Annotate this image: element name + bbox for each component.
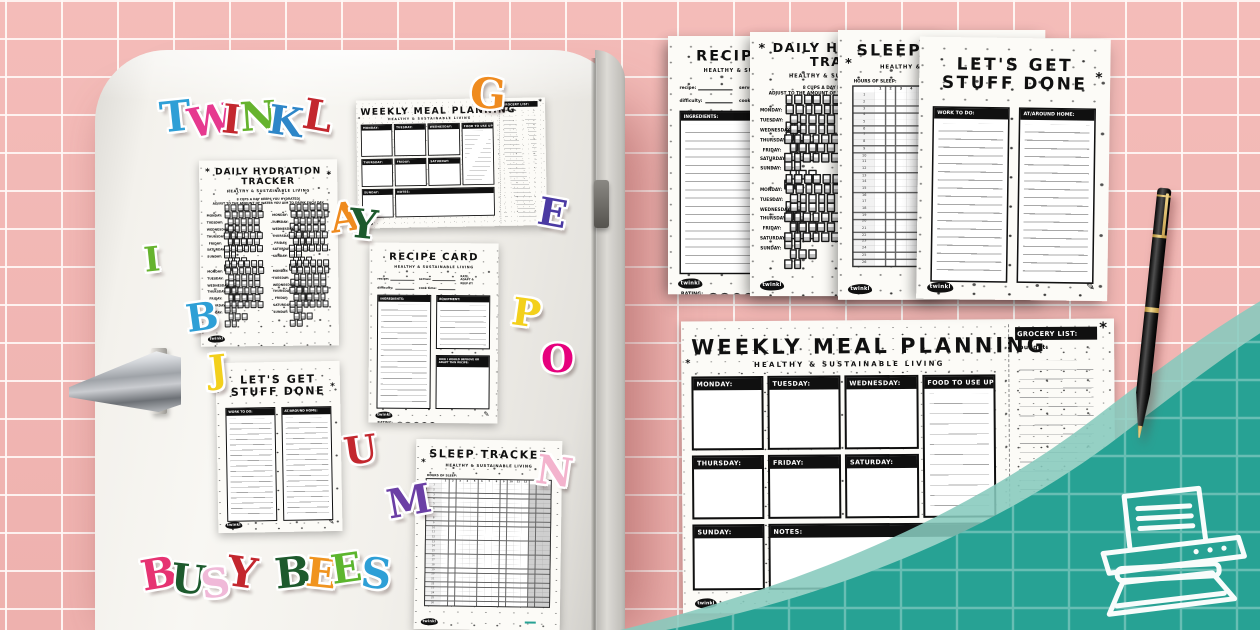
sleep-grid-cell: [471, 526, 478, 530]
sleep-grid-cell: [500, 532, 507, 536]
sleep-grid-cell: [449, 498, 456, 502]
sleep-grid-cell: [515, 499, 522, 503]
sleep-grid-cell: [875, 180, 885, 186]
field-line: [395, 284, 414, 289]
sleep-grid-cell: [522, 490, 529, 494]
sleep-grid-cell: [521, 536, 528, 540]
sleep-grid-cell: [906, 253, 916, 259]
sleep-grid-cell: [448, 554, 455, 558]
sleep-grid-cell: [542, 584, 549, 588]
hydration-day-row: SUNDAY:: [273, 308, 332, 315]
sleep-grid-cell: [442, 507, 449, 511]
sleep-grid-cell: [471, 512, 478, 516]
equipment-label: EQUIPMENT:: [437, 296, 489, 303]
sleep-grid-cell: [906, 100, 916, 106]
sleep-grid-cell: [896, 226, 906, 232]
sleep-grid-cell: [506, 602, 513, 606]
field-label: recipe:: [679, 84, 696, 90]
sleep-grid-cell: [463, 522, 470, 526]
sleep-grid-cell: 11: [515, 480, 522, 484]
meal-box-notes: NOTES:: [395, 187, 495, 218]
sleep-grid-cell: [886, 186, 896, 192]
sleep-grid-cell: [507, 508, 514, 512]
sleep-grid-cell: [513, 583, 520, 587]
sleep-grid-cell: [528, 565, 535, 569]
sleep-grid-cell: [442, 493, 449, 497]
sleep-grid-cell: [455, 596, 462, 600]
magnet-letter-k: K: [265, 100, 305, 144]
sleep-grid-cell: [507, 513, 514, 517]
sleep-grid-cell: [485, 531, 492, 535]
sleep-grid-cell: [521, 583, 528, 587]
sleep-grid-cell: [500, 499, 507, 503]
sleep-grid-cell: [513, 597, 520, 601]
sleep-grid-cell: [514, 527, 521, 531]
sleep-grid-cell: [441, 587, 448, 591]
day-label: MONDAY:: [207, 269, 223, 273]
sleep-grid-cell: [521, 532, 528, 536]
sleep-grid-cell: [544, 495, 551, 499]
rating-circle: [732, 293, 741, 294]
sleep-grid-cell: [514, 569, 521, 573]
day-label: TUESDAY:: [273, 275, 289, 279]
sleep-grid-cell: [886, 146, 896, 152]
sleep-grid-cell: [875, 173, 885, 179]
printer-icon: [1100, 486, 1247, 614]
sleep-grid-cell: [463, 568, 470, 572]
sleep-grid-cell: [492, 578, 499, 582]
sleep-grid-cell: [471, 489, 478, 493]
sleep-grid-cell: [456, 536, 463, 540]
sleep-grid-cell: [463, 578, 470, 582]
magnet-letter-i: I: [142, 242, 161, 277]
todo-column-work: WORK TO DO:: [225, 407, 277, 522]
sleep-grid-cell: [448, 545, 455, 549]
day-label: FRIDAY:: [760, 146, 781, 152]
sleep-grid-cell: 4: [906, 87, 916, 93]
sleep-grid-cell: [470, 550, 477, 554]
sleep-grid-cell: [536, 537, 543, 541]
sleep-grid-cell: 16: [854, 193, 875, 199]
sleep-grid-cell: [536, 532, 543, 536]
sleep-grid-cell: [528, 602, 535, 606]
hydration-week-blocks: MONDAY:TUESDAY:WEDNESDAY:THURSDAY:FRIDAY…: [207, 211, 332, 315]
sleep-grid-cell: [543, 518, 550, 522]
sleep-grid-cell: 9: [854, 146, 875, 152]
sleep-grid-cell: 6: [854, 126, 875, 132]
sleep-grid-cell: [875, 226, 885, 232]
sleep-grid-cell: [886, 93, 896, 99]
sleep-grid-cell: [457, 484, 464, 488]
sleep-grid-cell: [906, 233, 916, 239]
sleep-grid-cell: [500, 522, 507, 526]
sleep-grid-cell: [513, 602, 520, 606]
magnet-letter-g: G: [469, 72, 508, 116]
sleep-grid-cell: [484, 602, 491, 606]
meal-box-tuesday: TUESDAY:: [767, 375, 841, 450]
sleep-grid-cell: 26: [425, 601, 440, 605]
sleep-grid-cell: [529, 499, 536, 503]
sleep-grid-cell: [514, 508, 521, 512]
sleep-grid-cell: [514, 522, 521, 526]
sleep-grid-cell: [543, 532, 550, 536]
sleep-grid-cell: [875, 246, 885, 252]
sleep-grid-cell: [896, 206, 906, 212]
sleep-grid-cell: [500, 489, 507, 493]
sleep-grid-cell: [455, 578, 462, 582]
sleep-grid-cell: [886, 233, 896, 239]
sleep-grid-cell: [906, 240, 916, 246]
sleep-grid-cell: [528, 569, 535, 573]
sleep-grid-cell: 11: [854, 160, 875, 166]
todo-title: LET'S GETSTUFF DONE: [216, 373, 340, 400]
cup-icons: [784, 220, 843, 274]
sleep-grid-cell: [506, 564, 513, 568]
sleep-grid-cell: [906, 146, 916, 152]
sleep-grid-cell: [521, 588, 528, 592]
recipe-title: RECIPE CARD: [369, 252, 498, 264]
sleep-grid-cell: [529, 508, 536, 512]
sleep-grid: 1234567891011121234567891011121314151617…: [424, 478, 552, 608]
sleep-grid-cell: [886, 253, 896, 259]
todo-title: LET'S GETSTUFF DONE: [919, 55, 1110, 96]
sleep-grid-cell: 6: [478, 480, 485, 484]
sleep-grid-cell: [886, 106, 896, 112]
sleep-grid-cell: [529, 504, 536, 508]
ballpoint-pen: [1121, 186, 1182, 444]
field-line: [438, 285, 455, 290]
sleep-grid-cell: [886, 113, 896, 119]
budget-label: budget:: [1019, 344, 1097, 352]
grocery-label: GROCERY LIST:: [1015, 327, 1097, 341]
sleep-grid-cell: [513, 593, 520, 597]
sleep-grid-cell: [513, 579, 520, 583]
sleep-grid-cell: [854, 87, 875, 93]
sleep-grid-cell: 8: [493, 480, 500, 484]
field-label: cook time:: [419, 286, 437, 290]
cup-icon: [803, 153, 811, 163]
sleep-grid-cell: 7: [854, 133, 875, 139]
sleep-grid-cell: [528, 551, 535, 555]
sleep-grid-cell: [456, 526, 463, 530]
sleep-grid-cell: [886, 166, 896, 172]
sleep-grid-cell: [896, 220, 906, 226]
sleep-grid-cell: [522, 508, 529, 512]
sleep-grid-cell: [896, 166, 906, 172]
sleep-grid-cell: [886, 220, 896, 226]
sleep-grid-cell: [485, 541, 492, 545]
sleep-grid-cell: [886, 153, 896, 159]
ingredients-label: INGREDIENTS:: [681, 112, 756, 121]
sleep-grid-cell: [514, 574, 521, 578]
sleep-grid-cell: [896, 200, 906, 206]
recipe-field: recipe:: [377, 274, 414, 280]
sleep-grid-cell: [442, 517, 449, 521]
sleep-grid-cell: [478, 498, 485, 502]
sleep-grid-cell: [470, 583, 477, 587]
sleep-grid-cell: [896, 173, 906, 179]
sleep-grid-cell: [544, 499, 551, 503]
sleep-grid-cell: [456, 554, 463, 558]
sleep-grid-cell: [514, 513, 521, 517]
sleep-grid-cell: [886, 260, 896, 266]
sleep-grid-cell: [470, 540, 477, 544]
sleep-grid-cell: [471, 508, 478, 512]
sleep-grid-cell: [875, 146, 885, 152]
day-label: SATURDAY:: [760, 156, 787, 162]
sleep-grid-cell: [906, 213, 916, 219]
sleep-grid-cell: [500, 527, 507, 531]
meal-subtitle: HEALTHY & SUSTAINABLE LIVING: [691, 359, 1007, 369]
improve-label: HOW I WOULD IMPROVE OR ADAPT THIS RECIPE…: [437, 356, 489, 367]
sleep-grid-cell: [542, 602, 549, 606]
sleep-grid-cell: [536, 504, 543, 508]
sleep-grid-cell: [886, 226, 896, 232]
twinkl-logo: twinkl: [695, 598, 717, 608]
sleep-grid-cell: [492, 531, 499, 535]
sleep-grid-cell: [455, 601, 462, 605]
twinkl-logo: twinkl: [375, 411, 392, 419]
sleep-grid-cell: [486, 484, 493, 488]
sleep-grid-cell: [543, 579, 550, 583]
sleep-grid-cell: [449, 521, 456, 525]
sleep-grid-cell: [477, 601, 484, 605]
cup-icon: [224, 301, 230, 308]
sleep-grid-cell: [543, 556, 550, 560]
cup-icon: [251, 301, 257, 308]
sleep-grid-cell: [886, 140, 896, 146]
improve-box: HOW I WOULD IMPROVE OR ADAPT THIS RECIPE…: [435, 355, 489, 409]
sleep-grid-cell: [522, 494, 529, 498]
sleep-grid-cell: [896, 113, 906, 119]
sleep-grid-cell: [478, 508, 485, 512]
day-label: SATURDAY:: [272, 247, 291, 251]
meal-box-friday: FRIDAY:: [768, 454, 841, 519]
sleep-grid-cell: [896, 146, 906, 152]
sleep-grid-cell: [543, 541, 550, 545]
sleep-grid-cell: [896, 100, 906, 106]
sleep-grid-cell: [499, 588, 506, 592]
sleep-grid-cell: [441, 554, 448, 558]
sleep-grid-cell: [442, 512, 449, 516]
sleep-grid-cell: [455, 587, 462, 591]
sleep-grid-cell: [521, 527, 528, 531]
pen-lower-barrel: [1136, 311, 1158, 394]
rating-circles: [395, 413, 436, 423]
sleep-grid-cell: 9: [500, 480, 507, 484]
meal-box-saturday: SATURDAY:: [428, 157, 461, 185]
sleep-grid-cell: [448, 587, 455, 591]
sleep-grid-cell: [507, 532, 514, 536]
equipment-box: EQUIPMENT:: [436, 295, 490, 349]
sleep-grid-cell: [906, 140, 916, 146]
meal-title: WEEKLY MEAL PLANNING: [691, 333, 1007, 359]
sleep-grid-cell: [442, 489, 449, 493]
sleep-grid-cell: [506, 588, 513, 592]
sleep-grid-cell: [514, 555, 521, 559]
recipe-fields: RATE,ADAPT &KEEP IT! recipe:serves:diffi…: [377, 274, 490, 290]
sleep-grid-cell: [528, 583, 535, 587]
sleep-grid-cell: [485, 503, 492, 507]
sleep-grid-cell: [500, 503, 507, 507]
sleep-grid-cell: [456, 531, 463, 535]
sleep-grid-cell: [484, 588, 491, 592]
cup-icon: [793, 153, 801, 163]
weekly-meal-planning-large-sheet: WEEKLY MEAL PLANNING HEALTHY & SUSTAINAB…: [681, 318, 1116, 613]
sleep-grid-cell: [470, 597, 477, 601]
scene-tile-wall: DAILY HYDRATIONTRACKER HEALTHY & SUSTAIN…: [0, 0, 1260, 630]
sleep-grid-cell: [515, 490, 522, 494]
sleep-grid-cell: 1: [854, 93, 875, 99]
sleep-grid-cell: [492, 569, 499, 573]
pen-barrel: [1145, 237, 1166, 308]
sleep-grid-cell: [529, 518, 536, 522]
sleep-grid-cell: [906, 260, 916, 266]
sleep-grid-cell: [535, 579, 542, 583]
pencil-doodle-icon: ✎: [484, 410, 490, 418]
cup-icon: [257, 301, 263, 308]
sleep-grid-cell: [514, 518, 521, 522]
sleep-grid-cell: [522, 499, 529, 503]
sleep-grid-cell: [536, 523, 543, 527]
sleep-grid-cell: [449, 517, 456, 521]
sleep-grid-cell: [875, 120, 885, 126]
sleep-grid-cell: [477, 559, 484, 563]
sleep-grid-cell: [455, 582, 462, 586]
sleep-grid-cell: [464, 494, 471, 498]
sleep-grid-cell: [493, 508, 500, 512]
sleep-grid-cell: [506, 597, 513, 601]
sleep-grid-cell: [536, 541, 543, 545]
sleep-grid-cell: [507, 527, 514, 531]
sleep-grid-cell: [528, 546, 535, 550]
sleep-grid-cell: [536, 499, 543, 503]
sleep-grid-cell: [896, 140, 906, 146]
sleep-grid-cell: [455, 592, 462, 596]
todo-column-home: AT/AROUND HOME:: [281, 406, 333, 521]
sleep-grid-cell: 15: [854, 186, 875, 192]
day-label: MONDAY:: [273, 269, 289, 273]
sleep-grid-cell: [543, 565, 550, 569]
cup-icon: [316, 300, 322, 307]
sleep-grid-cell: [906, 200, 916, 206]
sleep-grid-cell: [478, 484, 485, 488]
sleep-grid-cell: [875, 193, 885, 199]
sleep-grid-cell: 12: [854, 166, 875, 172]
sleep-grid-cell: [507, 555, 514, 559]
sleep-grid-cell: [528, 574, 535, 578]
hydration-tracker-sheet: DAILY HYDRATIONTRACKER HEALTHY & SUSTAIN…: [199, 159, 339, 346]
sleep-grid-cell: [492, 583, 499, 587]
sleep-grid-cell: [493, 494, 500, 498]
todo-col1-label: WORK TO DO:: [934, 107, 1008, 119]
sleep-grid-cell: [508, 485, 515, 489]
sleep-grid-cell: [896, 180, 906, 186]
sleep-grid-cell: [442, 498, 449, 502]
field-label: difficulty:: [679, 97, 702, 103]
sleep-grid-cell: [886, 200, 896, 206]
rating-circle: [720, 293, 729, 294]
sleep-grid-cell: [448, 596, 455, 600]
sleep-grid-cell: [477, 583, 484, 587]
sleep-grid-cell: [499, 560, 506, 564]
sleep-grid-cell: [521, 579, 528, 583]
sleep-grid-cell: [543, 551, 550, 555]
sleep-grid-cell: [471, 503, 478, 507]
sleep-grid-cell: [477, 587, 484, 591]
sleep-grid-cell: [485, 517, 492, 521]
sleep-grid-cell: [544, 504, 551, 508]
sleep-grid-cell: [896, 233, 906, 239]
sleep-grid-cell: 12: [522, 480, 529, 484]
sleep-grid-cell: [441, 540, 448, 544]
sleep-grid-cell: 2: [449, 479, 456, 483]
sleep-grid-cell: [448, 582, 455, 586]
sleep-grid-cell: [456, 540, 463, 544]
sleep-grid-cell: [492, 574, 499, 578]
day-label: SATURDAY:: [273, 303, 292, 307]
sleep-grid-cell: [478, 522, 485, 526]
sleep-grid-cell: [521, 574, 528, 578]
cup-icon: [297, 319, 303, 326]
sleep-grid-cell: [906, 133, 916, 139]
star-doodle: *: [759, 46, 766, 52]
sleep-grid-cell: [441, 545, 448, 549]
fridge-hinge: [594, 180, 609, 228]
recipe-card-sheet: RECIPE CARD HEALTHY & SUSTAINABLE LIVING…: [368, 243, 498, 424]
sleep-grid-cell: [492, 550, 499, 554]
meal-box-thursday: THURSDAY:: [692, 455, 764, 520]
sleep-grid-cell: [536, 560, 543, 564]
sleep-grid-cell: [875, 133, 885, 139]
twinkl-logo: twinkl: [848, 283, 872, 294]
sleep-grid-cell: [529, 537, 536, 541]
sleep-grid-cell: [470, 555, 477, 559]
sleep-grid-cell: [507, 499, 514, 503]
sleep-grid-cell: [485, 522, 492, 526]
sleep-grid-cell: [543, 513, 550, 517]
sleep-grid-cell: [520, 597, 527, 601]
cup-icon: [784, 153, 792, 163]
sleep-grid-cell: [456, 503, 463, 507]
cup-icons: [224, 293, 266, 331]
sleep-grid-cell: 3: [457, 479, 464, 483]
pen-tip: [1137, 426, 1143, 438]
ingredients-label: INGREDIENTS:: [378, 295, 430, 302]
field-line: [698, 83, 731, 90]
sleep-grid-cell: [896, 246, 906, 252]
star-doodle: *: [421, 461, 426, 466]
sleep-grid-cell: [470, 587, 477, 591]
sleep-grid-cell: [448, 592, 455, 596]
meal-box-notes: NOTES:: [768, 522, 996, 590]
sleep-grid-cell: [528, 579, 535, 583]
sleep-grid-cell: [507, 522, 514, 526]
sleep-grid-cell: [442, 484, 449, 488]
sleep-grid-cell: [477, 555, 484, 559]
sleep-grid-cell: [543, 560, 550, 564]
sleep-grid-cell: [535, 574, 542, 578]
sleep-grid-cell: [875, 153, 885, 159]
fridge-door-seam: [591, 58, 597, 630]
sleep-grid-cell: [544, 509, 551, 513]
sleep-grid-cell: 1: [442, 479, 449, 483]
sleep-grid-cell: [478, 489, 485, 493]
day-label: MONDAY:: [760, 187, 782, 193]
sleep-grid-cell: [493, 499, 500, 503]
sleep-grid-cell: [536, 495, 543, 499]
sleep-grid-cell: [493, 517, 500, 521]
